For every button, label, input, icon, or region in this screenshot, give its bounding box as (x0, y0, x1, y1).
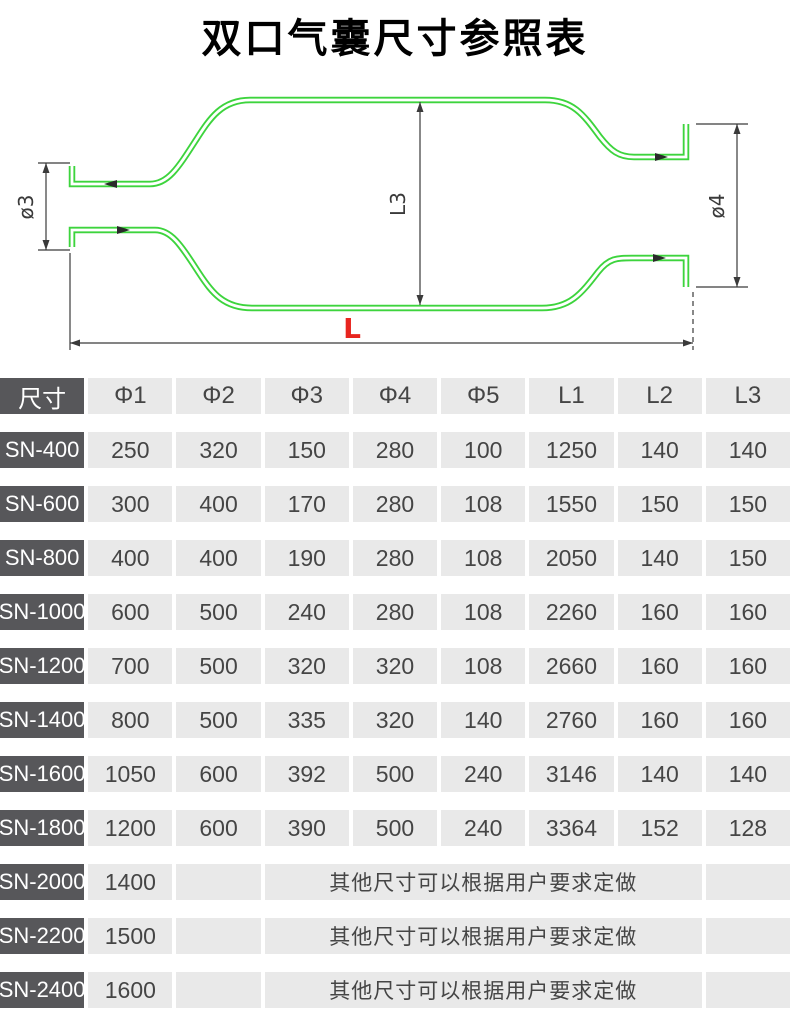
value-cell: 280 (353, 432, 437, 468)
value-cell: 140 (441, 702, 525, 738)
value-cell: 1400 (88, 864, 172, 900)
size-table: 尺寸Φ1Φ2Φ3Φ4Φ5L1L2L3SN-4002503201502801001… (0, 378, 790, 1008)
value-cell: 700 (88, 648, 172, 684)
dim-label-phi4: ø4 (705, 194, 729, 219)
dim-phi3 (38, 163, 70, 250)
value-cell: 150 (265, 432, 349, 468)
value-cell: 280 (353, 486, 437, 522)
row-label: SN-1400 (0, 702, 84, 738)
header-cell: Φ4 (353, 378, 437, 414)
value-cell: 160 (618, 702, 702, 738)
note-cell: 其他尺寸可以根据用户要求定做 (265, 864, 702, 900)
note-cell: 其他尺寸可以根据用户要求定做 (265, 918, 702, 954)
value-cell: 140 (618, 756, 702, 792)
value-cell: 500 (353, 756, 437, 792)
value-cell: 280 (353, 540, 437, 576)
value-cell: 3146 (529, 756, 613, 792)
value-cell: 140 (618, 540, 702, 576)
row-label: SN-2000 (0, 864, 84, 900)
value-cell: 400 (176, 486, 260, 522)
value-cell: 160 (618, 594, 702, 630)
value-cell: 800 (88, 702, 172, 738)
header-cell: L1 (529, 378, 613, 414)
airbag-diagram: ø3 L3 ø4 L (0, 0, 790, 376)
row-label: SN-400 (0, 432, 84, 468)
value-cell: 1200 (88, 810, 172, 846)
dim-label-l3: L3 (386, 192, 410, 216)
value-cell: 3364 (529, 810, 613, 846)
value-cell: 140 (618, 432, 702, 468)
airbag-outline-lower (72, 230, 686, 308)
value-cell: 600 (88, 594, 172, 630)
empty-cell (706, 864, 790, 900)
value-cell: 240 (441, 756, 525, 792)
value-cell: 150 (618, 486, 702, 522)
value-cell: 500 (176, 594, 260, 630)
value-cell: 160 (618, 648, 702, 684)
value-cell: 500 (176, 648, 260, 684)
header-cell: Φ3 (265, 378, 349, 414)
value-cell: 170 (265, 486, 349, 522)
value-cell: 500 (176, 702, 260, 738)
value-cell: 2260 (529, 594, 613, 630)
value-cell: 152 (618, 810, 702, 846)
value-cell: 160 (706, 594, 790, 630)
value-cell: 300 (88, 486, 172, 522)
dim-label-l: L (343, 312, 361, 345)
value-cell: 390 (265, 810, 349, 846)
value-cell: 400 (176, 540, 260, 576)
value-cell: 2050 (529, 540, 613, 576)
value-cell: 600 (176, 810, 260, 846)
dim-label-phi3: ø3 (14, 195, 38, 220)
value-cell: 108 (441, 648, 525, 684)
header-cell: L2 (618, 378, 702, 414)
value-cell: 128 (706, 810, 790, 846)
value-cell: 160 (706, 648, 790, 684)
header-cell: L3 (706, 378, 790, 414)
row-label: SN-2200 (0, 918, 84, 954)
value-cell: 1500 (88, 918, 172, 954)
value-cell: 108 (441, 486, 525, 522)
value-cell: 600 (176, 756, 260, 792)
value-cell: 190 (265, 540, 349, 576)
value-cell: 140 (706, 756, 790, 792)
header-cell: Φ5 (441, 378, 525, 414)
row-label: SN-2400 (0, 972, 84, 1008)
value-cell: 1050 (88, 756, 172, 792)
value-cell: 150 (706, 486, 790, 522)
empty-cell (176, 864, 260, 900)
value-cell: 108 (441, 540, 525, 576)
row-label: SN-1200 (0, 648, 84, 684)
row-label: SN-1800 (0, 810, 84, 846)
value-cell: 1550 (529, 486, 613, 522)
value-cell: 320 (353, 648, 437, 684)
value-cell: 280 (353, 594, 437, 630)
row-label: SN-600 (0, 486, 84, 522)
value-cell: 150 (706, 540, 790, 576)
row-label: SN-1000 (0, 594, 84, 630)
value-cell: 320 (265, 648, 349, 684)
value-cell: 250 (88, 432, 172, 468)
value-cell: 160 (706, 702, 790, 738)
value-cell: 1600 (88, 972, 172, 1008)
value-cell: 240 (441, 810, 525, 846)
value-cell: 1250 (529, 432, 613, 468)
value-cell: 2760 (529, 702, 613, 738)
value-cell: 392 (265, 756, 349, 792)
value-cell: 320 (176, 432, 260, 468)
value-cell: 108 (441, 594, 525, 630)
row-label: SN-1600 (0, 756, 84, 792)
row-label: SN-800 (0, 540, 84, 576)
value-cell: 335 (265, 702, 349, 738)
value-cell: 240 (265, 594, 349, 630)
value-cell: 2660 (529, 648, 613, 684)
value-cell: 500 (353, 810, 437, 846)
header-cell-size: 尺寸 (0, 378, 84, 414)
value-cell: 100 (441, 432, 525, 468)
empty-cell (176, 918, 260, 954)
value-cell: 140 (706, 432, 790, 468)
empty-cell (706, 918, 790, 954)
note-cell: 其他尺寸可以根据用户要求定做 (265, 972, 702, 1008)
airbag-spec-sheet: 双口气囊尺寸参照表 ø3 (0, 0, 790, 1034)
airbag-outline-upper (72, 100, 686, 184)
value-cell: 400 (88, 540, 172, 576)
empty-cell (176, 972, 260, 1008)
header-cell: Φ1 (88, 378, 172, 414)
value-cell: 320 (353, 702, 437, 738)
header-cell: Φ2 (176, 378, 260, 414)
empty-cell (706, 972, 790, 1008)
